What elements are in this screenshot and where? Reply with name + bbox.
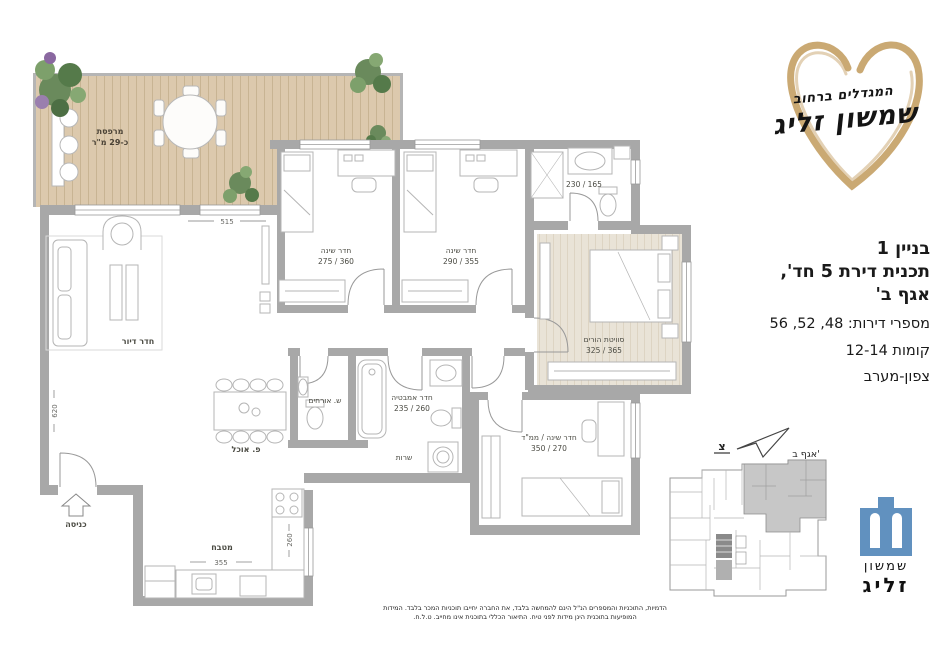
- kitchen: מטבח 355 260: [145, 489, 304, 598]
- north-arrow: צ: [714, 428, 789, 457]
- apartment-info: בניין 1 תכנית דירת 5 חד', אגף ב' מספרי ד…: [690, 238, 930, 391]
- company-name: שמשון זליג: [844, 559, 928, 597]
- terrace-rail-right: [400, 73, 403, 140]
- terrace-size: כ-29 מ"ר: [92, 138, 129, 147]
- desk: [338, 150, 395, 176]
- kitchen-label: מטבח: [211, 543, 233, 552]
- terrace-rail-left: [33, 73, 36, 207]
- company-name-top: שמשון: [844, 559, 928, 574]
- mamad-bedroom: חדר שינה / ממ"ד 350 / 270: [482, 402, 624, 518]
- terrace: מרפסת כ-29 מ"ר: [33, 52, 403, 207]
- terrace-label: מרפסת: [97, 127, 124, 136]
- dresser: [540, 243, 550, 319]
- bedroom2-size: 290 / 355: [443, 257, 479, 266]
- info-apartments: מספרי דירות: 48, 52, 56: [690, 311, 930, 338]
- master-bathroom: 230 / 165: [531, 146, 630, 216]
- bedroom1-label: חדר שינה: [321, 246, 352, 255]
- bedroom2-label: חדר שינה: [446, 246, 477, 255]
- company-logo-icon: [860, 497, 912, 556]
- info-wing: אגף ב': [690, 284, 930, 307]
- laundry-label: שרות: [396, 453, 413, 462]
- guest-wc-label: ש. אורחים: [309, 396, 342, 405]
- info-floors: קומות 12-14: [690, 338, 930, 365]
- master-size: 325 / 365: [586, 346, 622, 355]
- toilet: [452, 408, 461, 428]
- floorplan-page: מרפסת כ-29 מ"ר: [0, 0, 950, 650]
- laundry: שרות: [396, 442, 458, 472]
- dishwasher: [240, 576, 266, 596]
- master-label: סוויטת הורים: [584, 335, 625, 344]
- keyplan-wing-label: אגף ב': [792, 449, 819, 460]
- armchair: [103, 216, 141, 250]
- kitchen-dim-width: 355: [214, 559, 227, 567]
- entrance-arrow: [62, 494, 90, 516]
- north-arrow-glyph: [737, 428, 789, 457]
- info-plan-type: תכנית דירת 5 חד',: [690, 261, 930, 284]
- media-unit: [260, 226, 270, 313]
- dining-area: פ. אוכל: [214, 379, 286, 454]
- desk: [460, 150, 517, 176]
- bedroom-1: חדר שינה 275 / 360: [279, 150, 395, 302]
- mamad-label: חדר שינה / ממ"ד: [521, 433, 577, 442]
- company-name-bottom: זליג: [844, 573, 928, 597]
- kitchen-dim-height: 260: [286, 533, 294, 546]
- sofa: [53, 240, 87, 346]
- north-letter: צ: [718, 440, 725, 453]
- bathroom-label: חדר אמבטיה: [391, 393, 433, 402]
- living-label: חדר דיור: [122, 337, 154, 346]
- info-orientation: צפון-מערב: [690, 364, 930, 391]
- desk: [598, 402, 624, 456]
- brand-heart-icon: [791, 45, 920, 186]
- bedroom-2: חדר שינה 290 / 355: [402, 150, 517, 302]
- dim-top: 515: [220, 218, 233, 226]
- shaft: [614, 146, 630, 159]
- entrance: כניסה: [62, 494, 90, 529]
- entrance-label: כניסה: [65, 520, 87, 529]
- bathroom: חדר אמבטיה 235 / 260: [358, 360, 462, 438]
- nightstand: [662, 236, 678, 250]
- disclaimer-line2: המופיעות בתוכנית הינן מידות לפני טיח. הת…: [360, 613, 690, 622]
- terrace-rail-top: [33, 73, 403, 76]
- dim-left: 620: [51, 404, 59, 417]
- chair: [352, 178, 376, 192]
- guest-wc: ש. אורחים: [298, 377, 341, 429]
- disclaimer-line1: הדמיות, התוכניות והמספרים הנ"ל הינם להמח…: [360, 604, 690, 613]
- disclaimer: הדמיות, התוכניות והמספרים הנ"ל הינם להמח…: [360, 604, 690, 621]
- chair: [474, 178, 498, 192]
- info-building: בניין 1: [690, 238, 930, 261]
- mamad-size: 350 / 270: [531, 444, 567, 453]
- fridge: [145, 566, 175, 598]
- coffee-table: [110, 265, 138, 320]
- nightstand: [662, 324, 678, 338]
- bedroom1-size: 275 / 360: [318, 257, 354, 266]
- chair: [582, 420, 596, 442]
- key-plan: אגף ב': [670, 449, 826, 596]
- bathroom-size: 235 / 260: [394, 404, 430, 413]
- living-room: חדר דיור: [46, 216, 270, 350]
- dining-label: פ. אוכל: [231, 445, 260, 454]
- master-bath-size: 230 / 165: [566, 180, 602, 189]
